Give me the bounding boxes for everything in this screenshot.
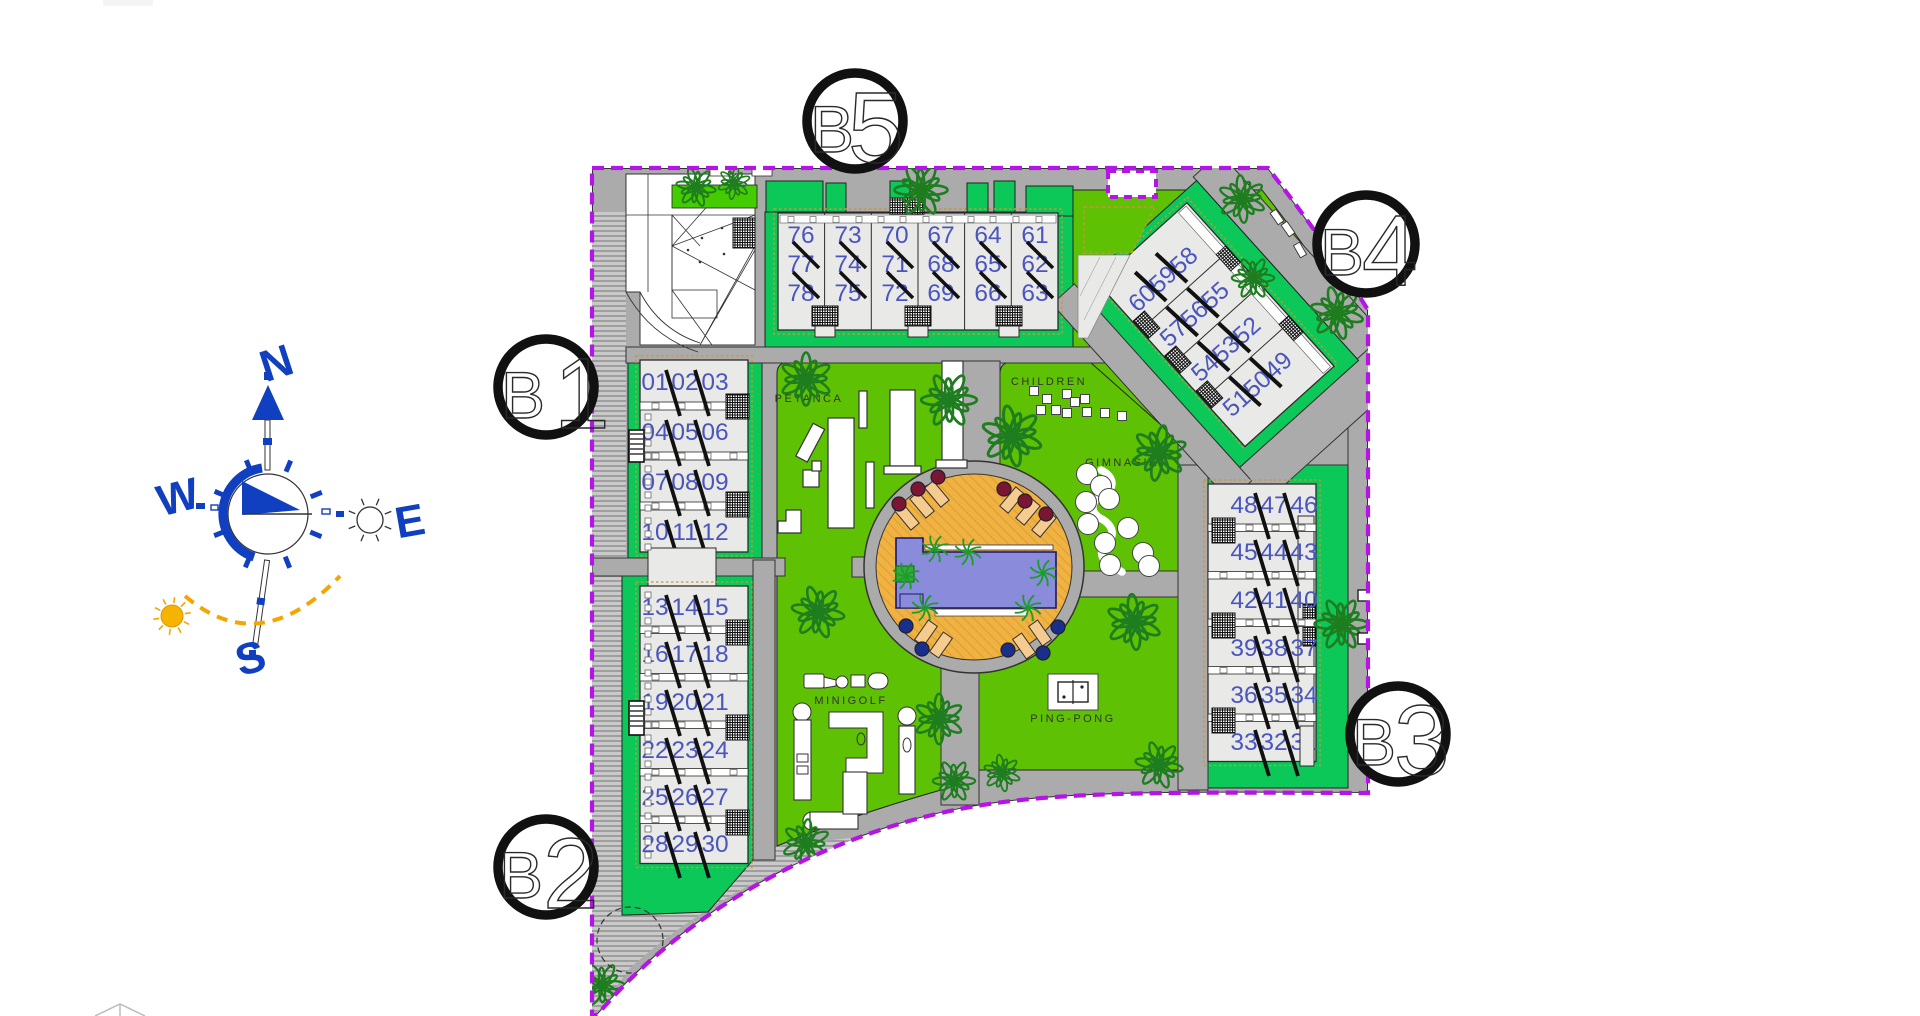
svg-text:34: 34 xyxy=(1290,682,1317,709)
svg-text:09: 09 xyxy=(701,469,728,496)
svg-text:3: 3 xyxy=(1394,685,1450,797)
svg-text:40: 40 xyxy=(1290,587,1317,614)
svg-text:36: 36 xyxy=(1230,682,1257,709)
svg-text:2: 2 xyxy=(543,818,599,930)
svg-text:01: 01 xyxy=(641,369,668,396)
svg-text:1: 1 xyxy=(554,338,610,450)
svg-text:46: 46 xyxy=(1290,492,1317,519)
svg-text:4: 4 xyxy=(1362,195,1418,307)
svg-text:65: 65 xyxy=(974,251,1001,278)
svg-text:75: 75 xyxy=(834,280,861,307)
svg-text:76: 76 xyxy=(787,222,814,249)
svg-text:78: 78 xyxy=(787,280,814,307)
svg-text:12: 12 xyxy=(701,519,728,546)
svg-text:S: S xyxy=(230,631,271,686)
svg-text:E: E xyxy=(391,495,428,548)
svg-text:70: 70 xyxy=(881,222,908,249)
svg-text:64: 64 xyxy=(974,222,1001,249)
svg-text:66: 66 xyxy=(974,280,1001,307)
svg-text:71: 71 xyxy=(881,251,908,278)
svg-text:CHILDREN: CHILDREN xyxy=(1011,376,1087,388)
svg-text:N: N xyxy=(254,335,299,391)
svg-text:15: 15 xyxy=(701,594,728,621)
svg-text:B: B xyxy=(501,358,545,432)
svg-text:69: 69 xyxy=(927,280,954,307)
svg-text:61: 61 xyxy=(1021,222,1048,249)
svg-text:MINIGOLF: MINIGOLF xyxy=(814,695,887,707)
svg-text:74: 74 xyxy=(834,251,861,278)
svg-text:48: 48 xyxy=(1230,492,1257,519)
svg-text:27: 27 xyxy=(701,784,728,811)
svg-text:03: 03 xyxy=(701,369,728,396)
svg-text:67: 67 xyxy=(927,222,954,249)
svg-text:62: 62 xyxy=(1021,251,1048,278)
svg-text:63: 63 xyxy=(1021,280,1048,307)
svg-text:21: 21 xyxy=(701,689,728,716)
svg-text:06: 06 xyxy=(701,419,728,446)
svg-text:30: 30 xyxy=(701,831,728,858)
svg-text:B: B xyxy=(1320,215,1364,289)
svg-text:11: 11 xyxy=(672,519,697,546)
svg-text:W: W xyxy=(152,469,205,527)
svg-text:39: 39 xyxy=(1230,635,1257,662)
svg-text:72: 72 xyxy=(881,280,908,307)
svg-text:PING-PONG: PING-PONG xyxy=(1030,713,1115,725)
svg-text:42: 42 xyxy=(1230,587,1257,614)
svg-text:68: 68 xyxy=(927,251,954,278)
svg-text:77: 77 xyxy=(787,251,814,278)
svg-text:43: 43 xyxy=(1290,539,1317,566)
svg-text:24: 24 xyxy=(701,737,728,764)
svg-text:B: B xyxy=(499,838,543,912)
svg-text:B: B xyxy=(1352,705,1396,779)
svg-text:73: 73 xyxy=(834,222,861,249)
svg-text:18: 18 xyxy=(701,641,728,668)
svg-text:5: 5 xyxy=(848,72,904,184)
svg-text:37: 37 xyxy=(1290,635,1317,662)
